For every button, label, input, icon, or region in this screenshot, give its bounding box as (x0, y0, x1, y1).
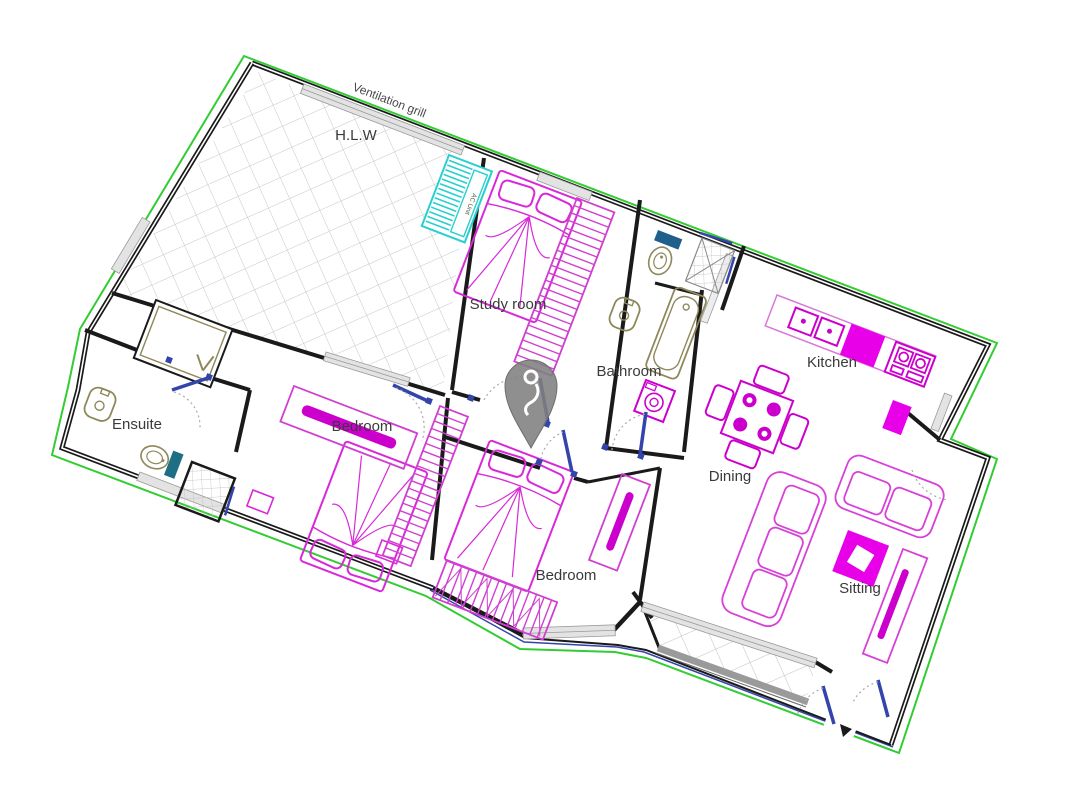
location-pin[interactable] (505, 360, 557, 448)
dining-set (692, 352, 821, 481)
room-label-sitting: Sitting (839, 580, 881, 597)
room-label-bedroom-left: Bedroom (332, 418, 393, 435)
bedroom-center-wardrobe-west (383, 406, 468, 566)
room-label-dining: Dining (709, 468, 752, 485)
coffee-table (832, 530, 889, 587)
sofa-two-seat (832, 452, 947, 541)
study-wardrobe (514, 198, 614, 376)
kitchen-counter (765, 295, 936, 387)
bedroom-left-bed (300, 441, 428, 592)
room-label-study: Study room (470, 296, 547, 313)
floor-plan-page: AC Unit (0, 0, 1066, 800)
washing-machine (634, 380, 675, 422)
room-label-bedroom-center: Bedroom (536, 567, 597, 584)
kitchen-return-cabinet (882, 400, 911, 435)
room-label-bathroom: Bathroom (596, 363, 661, 380)
room-label-hlw: H.L.W (335, 127, 378, 144)
ensuite-toilet (137, 440, 184, 479)
dining-place-settings (731, 391, 783, 443)
bedroom-center-dresser (589, 474, 650, 571)
room-label-kitchen: Kitchen (807, 354, 857, 371)
sofa-three-seat (718, 468, 830, 630)
floor-plan-drawing: AC Unit (0, 0, 1066, 800)
bathroom-toilet (643, 230, 682, 279)
room-label-ensuite: Ensuite (112, 416, 162, 433)
